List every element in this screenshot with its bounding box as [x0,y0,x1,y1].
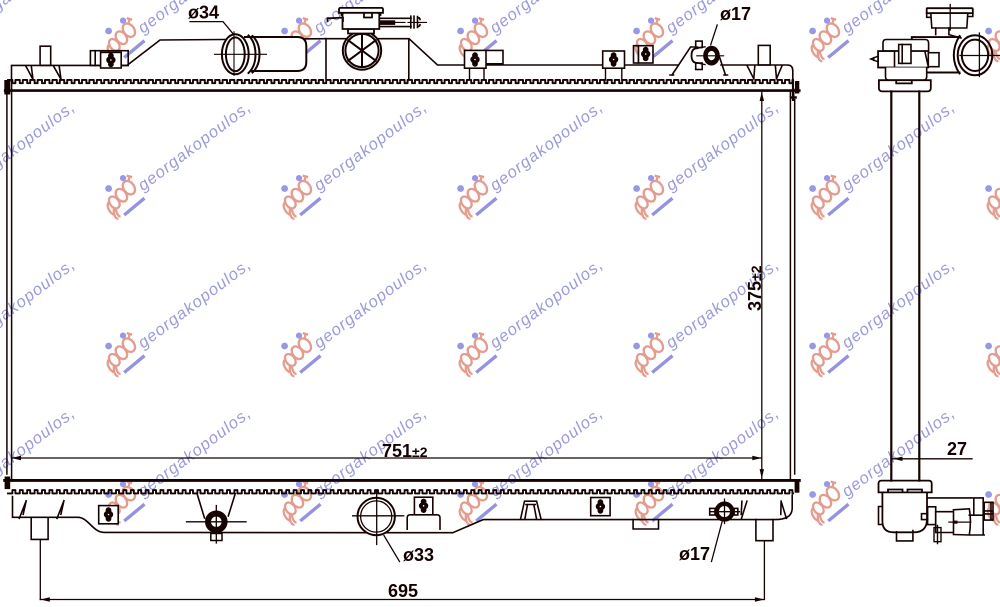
svg-text:ø33: ø33 [403,545,434,565]
svg-text:27: 27 [947,439,967,459]
svg-text:695: 695 [388,581,418,601]
svg-text:ø34: ø34 [188,3,219,23]
svg-text:ø17: ø17 [720,4,751,24]
svg-text:751±2: 751±2 [382,441,428,461]
svg-text:ø17: ø17 [679,544,710,564]
svg-text:375±2: 375±2 [745,265,765,311]
